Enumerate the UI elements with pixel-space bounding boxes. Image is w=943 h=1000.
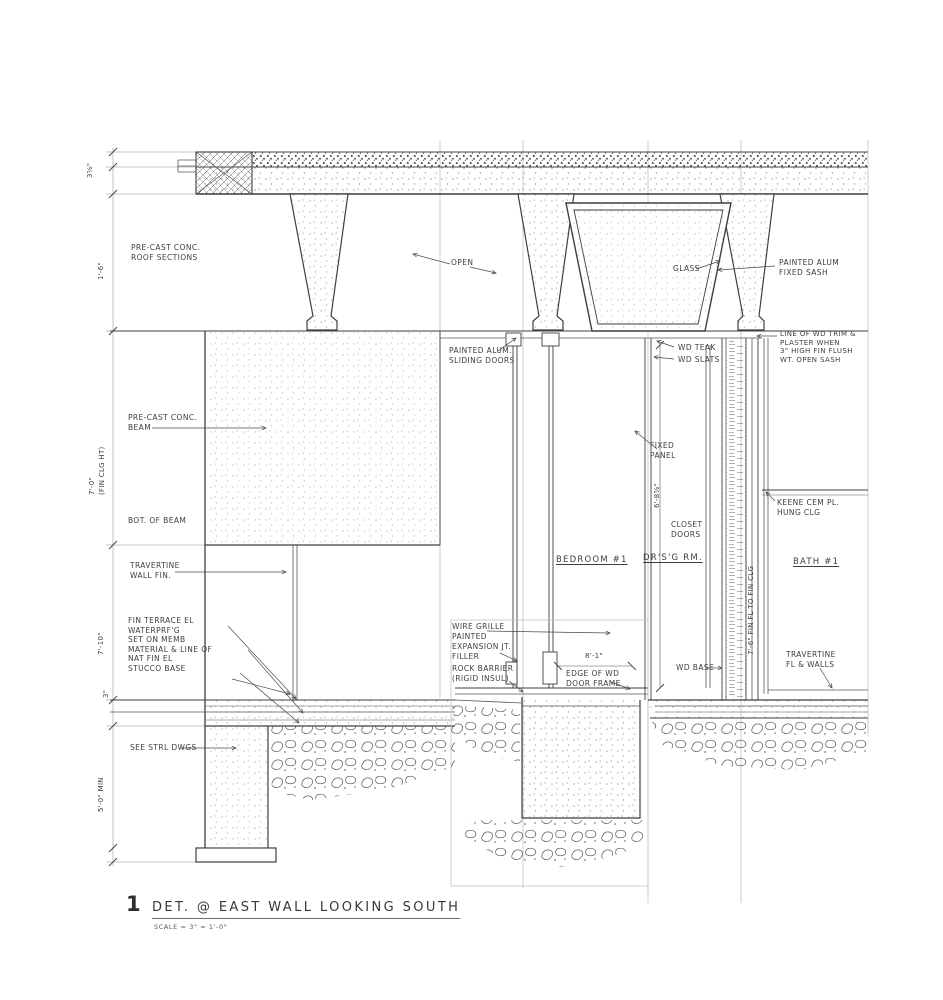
label-sliding-doors: PAINTED ALUM. SLIDING DOORS [449, 346, 515, 365]
label-precast-beam: PRE-CAST CONC. BEAM [128, 413, 197, 432]
label-terrace-notes: FIN TERRACE EL WATERPRF'G SET ON MEMB MA… [128, 616, 212, 673]
dim-1-6: 1'-6" [97, 262, 107, 280]
dim-3: 3" [102, 690, 112, 698]
drawing-scale: SCALE = 3" = 1'-0" [154, 923, 227, 931]
drawing-sheet: PRE-CAST CONC. ROOF SECTIONS PRE-CAST CO… [0, 0, 943, 1000]
label-see-strl-dwgs: SEE STRL DWGS [130, 743, 197, 753]
label-fixed-sash: PAINTED ALUM FIXED SASH [779, 258, 839, 277]
label-wd-teak: WD TEAK [678, 343, 716, 353]
label-expansion-jt: EXPANSION JT. FILLER [452, 642, 511, 661]
dim-7-10: 7'-10" [97, 632, 107, 655]
label-hung-clg: KEENE CEM PL. HUNG CLG [777, 498, 839, 517]
label-wire-grille: WIRE GRILLE PAINTED [452, 622, 505, 641]
room-bedroom-1: BEDROOM #1 [556, 556, 628, 566]
label-wd-slats: WD SLATS [678, 355, 720, 365]
label-rock-barrier: ROCK BARRIER (RIGID INSUL) [452, 664, 513, 683]
label-edge-door-frame: EDGE OF WD DOOR FRAME [566, 669, 621, 688]
dim-3-5-8: 3⅝" [86, 163, 96, 178]
drawing-title: DET. @ EAST WALL LOOKING SOUTH [152, 900, 460, 919]
dim-7-6-fl-clg: 7'-6" FIN FL TO FIN CLG [747, 566, 757, 655]
label-roof-sections: PRE-CAST CONC. ROOF SECTIONS [131, 243, 200, 262]
detail-number: 1 [126, 892, 141, 916]
room-bath-1: BATH #1 [793, 558, 839, 568]
dim-5-0-min: 5'-0" MIN [97, 777, 107, 812]
label-wd-trim-note: LINE OF WD TRIM & PLASTER WHEN 3" HIGH F… [780, 330, 856, 364]
dim-6-8-5-8: 6'-8⅝" [653, 483, 663, 508]
dim-8-1: 8'-1" [585, 652, 603, 662]
label-fixed-panel: FIXED PANEL [650, 441, 676, 460]
label-travertine-wall: TRAVERTINE WALL FIN. [130, 561, 180, 580]
label-closet-doors: CLOSET DOORS [671, 520, 703, 539]
label-wd-base: WD BASE [676, 663, 714, 673]
label-travertine-floor: TRAVERTINE FL & WALLS [786, 650, 836, 669]
label-bot-of-beam: BOT. OF BEAM [128, 516, 186, 526]
dim-7-0-clg: 7'-0" (FIN CLG HT) [88, 446, 107, 495]
label-glass: GLASS [673, 264, 700, 274]
room-dressing-rm: DR'S'G RM. [643, 554, 703, 564]
label-open: OPEN [451, 258, 473, 268]
